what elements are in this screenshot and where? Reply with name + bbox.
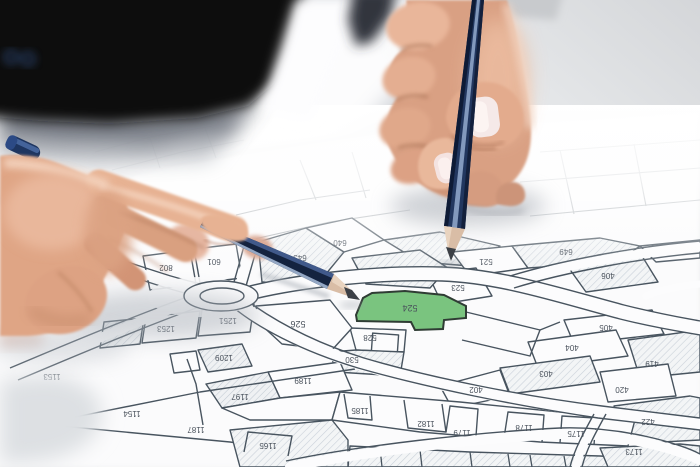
svg-text:1187: 1187 xyxy=(187,425,205,434)
svg-text:403: 403 xyxy=(539,369,553,378)
svg-text:530: 530 xyxy=(345,355,359,364)
svg-text:1173: 1173 xyxy=(625,447,643,456)
svg-text:1185: 1185 xyxy=(351,406,369,415)
svg-text:528: 528 xyxy=(363,333,377,342)
svg-text:1209: 1209 xyxy=(215,353,233,362)
svg-text:406: 406 xyxy=(601,271,615,280)
svg-text:1182: 1182 xyxy=(417,419,435,428)
svg-text:1154: 1154 xyxy=(123,409,141,418)
svg-text:1175: 1175 xyxy=(567,429,585,438)
svg-text:419: 419 xyxy=(645,359,659,368)
svg-text:524: 524 xyxy=(402,303,417,313)
svg-text:526: 526 xyxy=(290,319,305,329)
svg-text:1179: 1179 xyxy=(453,428,471,437)
svg-text:1197: 1197 xyxy=(231,392,249,401)
svg-text:1178: 1178 xyxy=(515,423,533,432)
svg-text:405: 405 xyxy=(599,323,613,332)
svg-text:523: 523 xyxy=(451,283,465,292)
svg-text:422: 422 xyxy=(641,417,655,426)
svg-text:1165: 1165 xyxy=(259,441,277,450)
svg-text:1189: 1189 xyxy=(294,376,312,385)
svg-text:402: 402 xyxy=(469,385,483,394)
svg-text:404: 404 xyxy=(565,343,579,352)
svg-text:420: 420 xyxy=(615,385,629,394)
